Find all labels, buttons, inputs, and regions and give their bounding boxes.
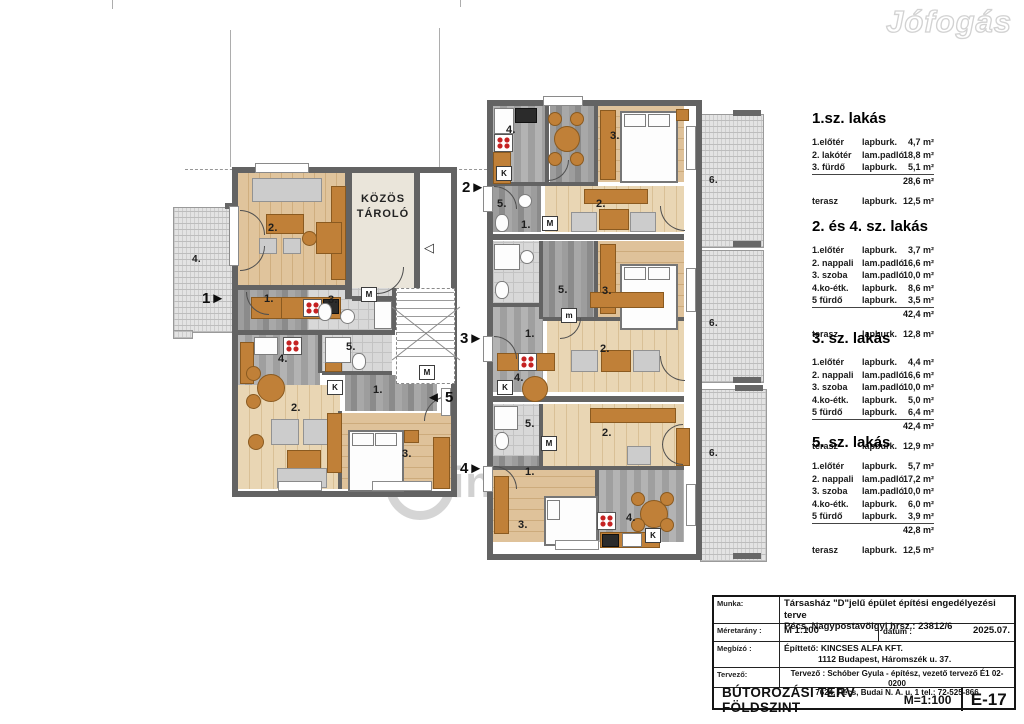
wall xyxy=(493,234,684,240)
room-label: 4. xyxy=(506,124,516,136)
chair xyxy=(570,112,584,126)
wall-stub xyxy=(733,377,761,383)
room-label: 1. xyxy=(525,328,535,340)
titleblock-row-megbizo: Megbízó : Építtető: KINCSES ALFA KFT. 11… xyxy=(714,642,1014,668)
datum-value: 2025.07. xyxy=(929,624,1014,641)
legend-terrace-row: teraszlapburk.12,5 m² xyxy=(812,195,934,208)
sofa xyxy=(584,189,648,204)
entrance-opening xyxy=(483,336,493,362)
drawing-scale: M=1:100 xyxy=(904,693,962,707)
wall-stub xyxy=(733,241,761,247)
terrace-label: 6. xyxy=(709,318,718,329)
table xyxy=(316,222,342,254)
wall xyxy=(493,303,543,307)
wall-stub xyxy=(735,385,763,391)
megbizo-label: Megbízó : xyxy=(714,642,780,667)
legend-apartment-2-4: 2. és 4. sz. lakás 1.előtérlapburk.3,7 m… xyxy=(812,218,934,340)
legend-row: 1.előtérlapburk.4,7 m² xyxy=(812,136,934,149)
legend-apartment-1: 1.sz. lakás 1.előtérlapburk.4,7 m²2. lak… xyxy=(812,110,934,207)
drawing-title: BÚTOROZÁSI TERV FÖLDSZINT xyxy=(714,685,904,715)
terrace-label: 4. xyxy=(192,254,201,265)
chair xyxy=(660,492,674,506)
stove-icon xyxy=(597,512,616,530)
meretarany-label: Méretarány : xyxy=(714,624,780,641)
room-label: 2. xyxy=(291,402,301,414)
chair xyxy=(248,434,264,450)
window xyxy=(686,484,696,526)
legend-row: 5 fürdőlapburk.3,9 m² xyxy=(812,510,934,523)
wall xyxy=(318,335,322,373)
washer-box: M xyxy=(542,216,558,231)
nightstand xyxy=(404,430,419,443)
sink-icon xyxy=(602,534,619,547)
room-label: 5. xyxy=(346,341,356,353)
wardrobe xyxy=(600,110,616,180)
munka-label: Munka: xyxy=(714,597,780,623)
washer-box: M xyxy=(361,287,377,302)
room-label: 3. xyxy=(518,519,528,531)
legend-total: 42,4 m² xyxy=(812,419,934,433)
pillow xyxy=(648,267,670,280)
entrance-marker-2: 2► xyxy=(462,179,485,196)
room-label: 4. xyxy=(514,372,524,384)
room-label: 1. xyxy=(525,466,535,478)
window xyxy=(686,126,696,170)
stove-icon xyxy=(518,353,537,371)
room-label: 4. xyxy=(278,353,288,365)
legend-row: 2. lakótérlam.padló18,8 m² xyxy=(812,149,934,162)
room-label: 3. xyxy=(402,448,412,460)
room-label: 4. xyxy=(626,512,636,524)
window xyxy=(555,540,599,550)
pillow xyxy=(624,267,646,280)
wall xyxy=(539,404,543,466)
room-label: 1. xyxy=(264,293,274,305)
munka-content: Társasház "D"jelű épület építési engedél… xyxy=(780,597,1014,623)
legend-title: 5. sz. lakás xyxy=(812,434,934,451)
terrace-label: 6. xyxy=(709,448,718,459)
entrance-opening xyxy=(483,466,493,492)
appliance xyxy=(254,337,278,355)
room-label: 5. xyxy=(525,418,535,430)
window xyxy=(255,163,309,173)
kozos-line2: TÁROLÓ xyxy=(357,208,409,220)
room-label: 3. xyxy=(328,294,338,306)
washer-box: m xyxy=(561,308,577,323)
legend-row: 1.előtérlapburk.3,7 m² xyxy=(812,244,934,257)
nightstand xyxy=(676,109,689,121)
legend-row: 5 fürdőlapburk.3,5 m² xyxy=(812,294,934,307)
table xyxy=(599,209,629,230)
entrance-marker-3: 3► xyxy=(460,330,483,347)
titleblock-row-scale: Méretarány : M 1:100 dátum : 2025.07. xyxy=(714,624,1014,642)
armchair xyxy=(633,350,660,372)
dining-table xyxy=(554,126,580,152)
pillow xyxy=(375,433,397,446)
sheet-number: E-17 xyxy=(961,688,1014,711)
sink-icon xyxy=(520,250,534,264)
legend-row: 3. szobalam.padló10,0 m² xyxy=(812,381,934,394)
kitchen-box: K xyxy=(327,380,343,395)
legend-row: 1.előtérlapburk.5,7 m² xyxy=(812,460,934,473)
terrace-right-bottom xyxy=(700,389,767,562)
stair-treads xyxy=(397,289,454,357)
legend-row: 4.ko-étk.lapburk.5,0 m² xyxy=(812,394,934,407)
room-label: 5. xyxy=(558,284,568,296)
washer-box: M xyxy=(419,365,435,380)
pillow xyxy=(547,500,560,520)
room-label: 1. xyxy=(373,384,383,396)
legend-apartment-5: 5. sz. lakás 1.előtérlapburk.5,7 m²2. na… xyxy=(812,434,934,556)
pillow xyxy=(624,114,646,127)
construction-line xyxy=(439,28,440,170)
wall xyxy=(238,285,348,290)
sofa xyxy=(252,178,322,202)
chair xyxy=(302,231,317,246)
legend-row: 4.ko-étk.lapburk.6,0 m² xyxy=(812,498,934,511)
door-direction-icon: ◁ xyxy=(424,240,434,256)
armchair xyxy=(571,350,598,372)
kozos-line1: KÖZÖS xyxy=(361,193,405,205)
room-label: 3. xyxy=(602,285,612,297)
legend-terrace-row: teraszlapburk.12,5 m² xyxy=(812,544,934,557)
wall-stub xyxy=(733,553,761,559)
room-label: 1. xyxy=(521,219,531,231)
wall xyxy=(493,396,684,402)
chair xyxy=(548,112,562,126)
u2-eloter-floor xyxy=(543,241,594,317)
megbizo-content: Építtető: KINCSES ALFA KFT. 1112 Budapes… xyxy=(780,642,1014,667)
wall-stub xyxy=(733,110,761,116)
legend-total: 28,6 m² xyxy=(812,174,934,188)
shower-icon xyxy=(494,406,518,430)
terrace-door-opening xyxy=(229,206,239,266)
jofogas-watermark: Jófogás xyxy=(886,4,1012,40)
client-line1: Építtető: KINCSES ALFA KFT. xyxy=(784,643,1010,654)
legend-row: 2. nappalilam.padló17,2 m² xyxy=(812,473,934,486)
sink-icon xyxy=(340,309,355,324)
oven-icon xyxy=(515,108,537,123)
legend-title: 1.sz. lakás xyxy=(812,110,934,127)
room-label: 2. xyxy=(596,198,606,210)
edge-tick xyxy=(112,0,113,9)
armchair xyxy=(571,212,597,232)
wall xyxy=(414,173,420,299)
kitchen-box: K xyxy=(496,166,512,181)
entrance-marker-4: 4► xyxy=(460,460,483,477)
room-label: 5. xyxy=(497,198,507,210)
shower-icon xyxy=(494,244,520,270)
entrance-marker-5: ◄ 5 xyxy=(426,389,453,406)
bathtub-icon xyxy=(374,301,392,329)
appliance xyxy=(622,533,642,547)
entrance-marker-1: 1► xyxy=(202,290,225,307)
window xyxy=(372,481,432,491)
legend-title: 3. sz. lakás xyxy=(812,330,934,347)
terrace-stub xyxy=(173,330,193,339)
floor-plan-page: Jófogás ingatlanpont xyxy=(0,0,1024,724)
edge-tick xyxy=(460,0,461,7)
project-title-line1: Társasház "D"jelű épület építési engedél… xyxy=(784,598,1010,621)
terrace-right-middle xyxy=(700,250,764,383)
legend-row: 3. szobalam.padló10,0 m² xyxy=(812,269,934,282)
armchair xyxy=(271,419,299,445)
kitchen-box: K xyxy=(497,380,513,395)
titleblock-row-munka: Munka: Társasház "D"jelű épület építési … xyxy=(714,597,1014,624)
chair xyxy=(631,492,645,506)
kitchen-box: K xyxy=(645,528,661,543)
wardrobe xyxy=(433,437,450,489)
wc-icon xyxy=(352,353,366,370)
legend-row: 2. nappalilam.padló16,6 m² xyxy=(812,257,934,270)
wall xyxy=(539,241,543,319)
armchair xyxy=(630,212,656,232)
dining-table xyxy=(522,376,548,402)
sink-icon xyxy=(518,194,532,208)
legend-rows: 1.előtérlapburk.4,4 m²2. nappalilam.padl… xyxy=(812,356,934,419)
armchair xyxy=(627,446,651,465)
wc-icon xyxy=(495,214,509,232)
sofa xyxy=(590,408,676,423)
legend-row: 1.előtérlapburk.4,4 m² xyxy=(812,356,934,369)
titleblock-row-drawing: BÚTOROZÁSI TERV FÖLDSZINT M=1:100 E-17 xyxy=(714,688,1014,711)
pillow xyxy=(352,433,374,446)
wall xyxy=(345,173,352,299)
room-label: 3. xyxy=(610,130,620,142)
room-label: 2. xyxy=(268,222,278,234)
client-line2: 1112 Budapest, Háromszék u. 37. xyxy=(784,654,1010,665)
room-label: 2. xyxy=(600,343,610,355)
legend-row: 3. fürdőlapburk.5,1 m² xyxy=(812,161,934,174)
wall xyxy=(594,106,598,184)
legend-row: 2. nappalilam.padló16,6 m² xyxy=(812,369,934,382)
window xyxy=(686,268,696,312)
wall xyxy=(493,466,684,470)
title-block: Munka: Társasház "D"jelű épület építési … xyxy=(712,595,1016,710)
room-label: 2. xyxy=(602,427,612,439)
window xyxy=(543,96,583,106)
legend-row: 4.ko-étk.lapburk.8,6 m² xyxy=(812,282,934,295)
legend-rows: 1.előtérlapburk.3,7 m²2. nappalilam.padl… xyxy=(812,244,934,307)
stove-icon xyxy=(494,134,513,152)
legend-row: 5 fürdőlapburk.6,4 m² xyxy=(812,406,934,419)
chair xyxy=(246,394,261,409)
chair xyxy=(570,152,584,166)
cabinet xyxy=(327,413,342,473)
wc-icon xyxy=(495,432,509,450)
window xyxy=(278,481,322,491)
wc-icon xyxy=(495,281,509,299)
legend-row: 3. szobalam.padló10,0 m² xyxy=(812,485,934,498)
wall xyxy=(238,330,395,335)
legend-rows: 1.előtérlapburk.5,7 m²2. nappalilam.padl… xyxy=(812,460,934,523)
chair xyxy=(246,366,261,381)
construction-line xyxy=(230,30,231,167)
washer-box: M xyxy=(541,436,557,451)
legend-title: 2. és 4. sz. lakás xyxy=(812,218,934,235)
chair xyxy=(283,238,301,254)
chair xyxy=(660,518,674,532)
legend-total: 42,8 m² xyxy=(812,523,934,537)
kozos-tarolo-label: KÖZÖS TÁROLÓ xyxy=(352,192,414,222)
scale-value: M 1:100 xyxy=(780,624,879,641)
dining-table xyxy=(257,374,285,402)
pillow xyxy=(648,114,670,127)
legend-rows: 1.előtérlapburk.4,7 m²2. lakótérlam.padl… xyxy=(812,136,934,174)
legend-total: 42,4 m² xyxy=(812,307,934,321)
terrace-label: 6. xyxy=(709,175,718,186)
datum-label: dátum : xyxy=(879,624,929,641)
